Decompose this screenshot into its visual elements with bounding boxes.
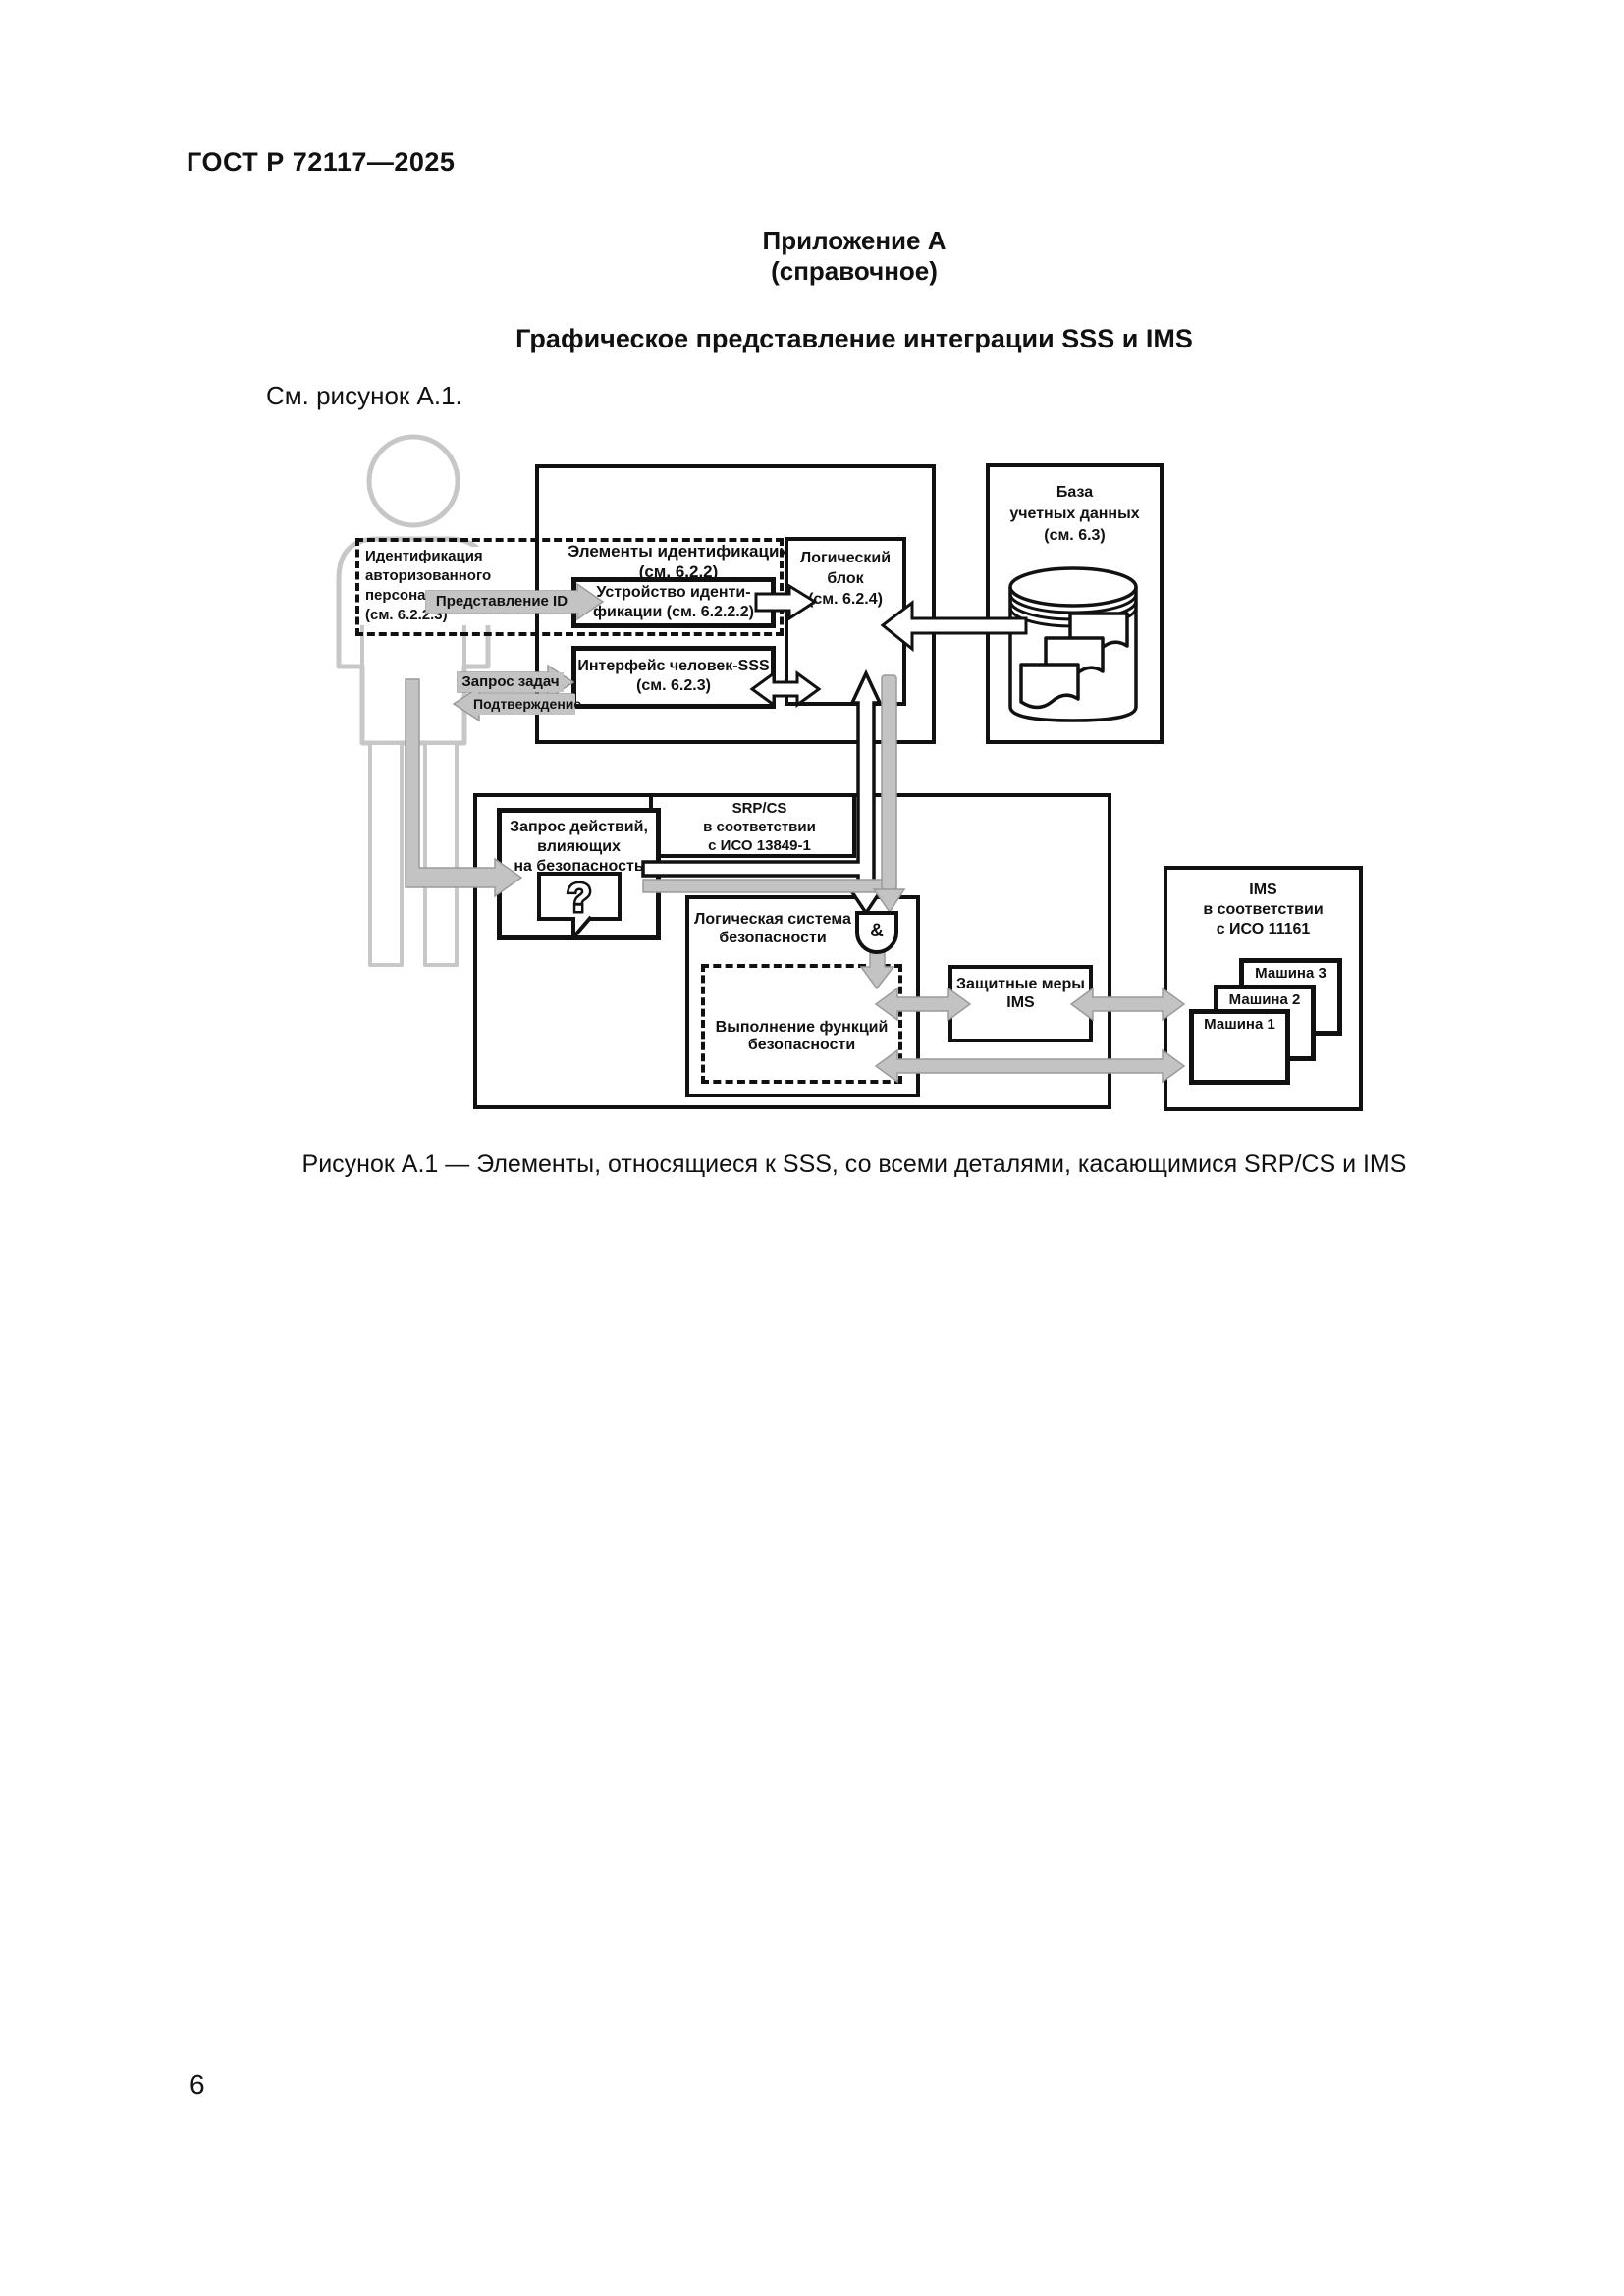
credentials-db-label: База учетных данных (см. 6.3) [990,467,1160,547]
person-head [369,437,458,525]
protective-measures-label: Защитные меры IMS [952,969,1089,1012]
figure-caption: Рисунок А.1 — Элементы, относящиеся к SS… [187,1150,1522,1179]
and-gate-label: & [870,921,884,941]
human-sss-interface-box: Интерфейс человек-SSS (см. 6.2.3) [571,646,776,709]
safety-logic-label: Логическая система безопасности [689,910,856,947]
safety-request-box: Запрос действий, влияющих на безопасност… [497,808,661,940]
credentials-db-box: База учетных данных (см. 6.3) [986,463,1164,744]
section-title: Графическое представление интеграции SSS… [187,324,1522,354]
appendix-label: Приложение А [187,226,1522,256]
person-left-leg [370,743,402,965]
id-device-label: Устройство иденти- фикации (см. 6.2.2.2) [576,582,771,622]
page-number: 6 [189,2069,205,2101]
doc-number: ГОСТ Р 72117—2025 [187,147,455,178]
safety-exec-label: Выполнение функций безопасности [701,1019,902,1054]
document-page: ГОСТ Р 72117—2025 Приложение А (справочн… [0,0,1624,2296]
srpcs-heading-label: SRP/CS в соответствии с ИСО 13849-1 [653,797,852,855]
safety-request-label: Запрос действий, влияющих на безопасност… [502,813,656,877]
protective-measures-box: Защитные меры IMS [948,965,1093,1042]
task-request-label: Запрос задач [458,672,564,692]
machine-1-box: Машина 1 [1189,1009,1290,1085]
confirmation-label: Подтверждение [473,694,575,715]
human-sss-interface-label: Интерфейс человек-SSS (см. 6.2.3) [576,651,771,696]
and-gate: & [855,911,898,954]
machine-2-label: Машина 2 [1218,989,1311,1010]
id-elements-label: Элементы идентификации (см. 6.2.2) [548,541,809,582]
machine-3-label: Машина 3 [1244,963,1337,984]
srpcs-heading-box: SRP/CS в соответствии с ИСО 13849-1 [649,793,856,858]
intro-text: См. рисунок А.1. [266,381,462,411]
authorized-personnel-label: Идентификация авторизованного персонала … [359,547,491,625]
machine-1-label: Машина 1 [1194,1014,1285,1035]
presentation-id-label: Представление ID [426,591,577,613]
id-device-box: Устройство иденти- фикации (см. 6.2.2.2) [571,577,776,628]
appendix-type: (справочное) [187,256,1522,287]
ims-label: IMS в соответствии с ИСО 11161 [1167,870,1359,939]
person-right-leg [425,743,457,965]
